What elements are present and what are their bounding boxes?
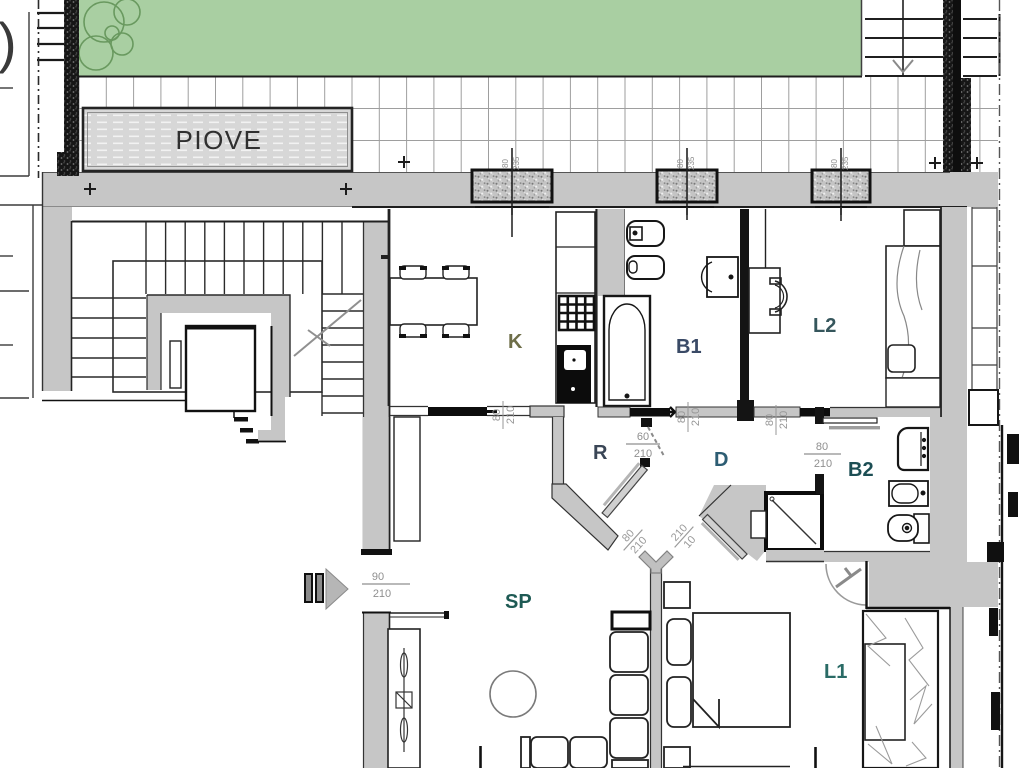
- svg-text:SP: SP: [505, 591, 532, 613]
- svg-text:235: 235: [687, 156, 696, 170]
- svg-text:235: 235: [841, 156, 850, 170]
- svg-text:210: 210: [505, 406, 517, 424]
- svg-text:210: 210: [778, 411, 790, 429]
- svg-text:80: 80: [676, 411, 688, 423]
- svg-text:R: R: [593, 442, 608, 464]
- svg-text:80: 80: [491, 409, 503, 421]
- svg-text:80: 80: [816, 441, 828, 453]
- svg-text:L1: L1: [824, 661, 847, 683]
- svg-text:L2: L2: [813, 315, 836, 337]
- svg-text:D: D: [714, 449, 728, 471]
- svg-text:210: 210: [690, 408, 702, 426]
- svg-text:B2: B2: [848, 459, 874, 481]
- svg-text:80: 80: [501, 159, 510, 168]
- svg-text:K: K: [508, 331, 523, 353]
- svg-text:60: 60: [637, 431, 649, 443]
- svg-text:80: 80: [764, 414, 776, 426]
- svg-text:210: 210: [373, 588, 391, 600]
- svg-text:B1: B1: [676, 336, 702, 358]
- svg-text:80: 80: [830, 159, 839, 168]
- svg-text:): ): [0, 11, 17, 74]
- svg-text:235: 235: [512, 156, 521, 170]
- svg-text:PIOVE: PIOVE: [176, 125, 263, 155]
- svg-text:90: 90: [372, 571, 384, 583]
- svg-text:80: 80: [676, 159, 685, 168]
- svg-text:210: 210: [814, 458, 832, 470]
